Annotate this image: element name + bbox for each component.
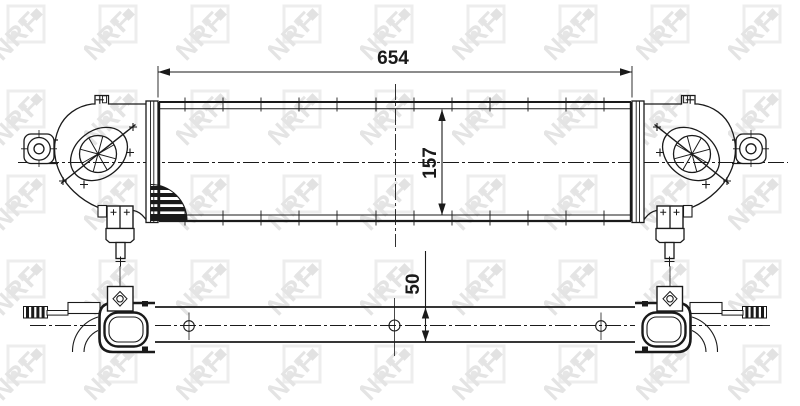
dimension-depth-label: 50: [403, 273, 424, 294]
drawing-page: NRF: [0, 0, 800, 406]
technical-drawing: NRF: [0, 0, 800, 406]
dimension-height-label: 157: [420, 147, 441, 179]
dimension-width-label: 654: [377, 48, 409, 69]
